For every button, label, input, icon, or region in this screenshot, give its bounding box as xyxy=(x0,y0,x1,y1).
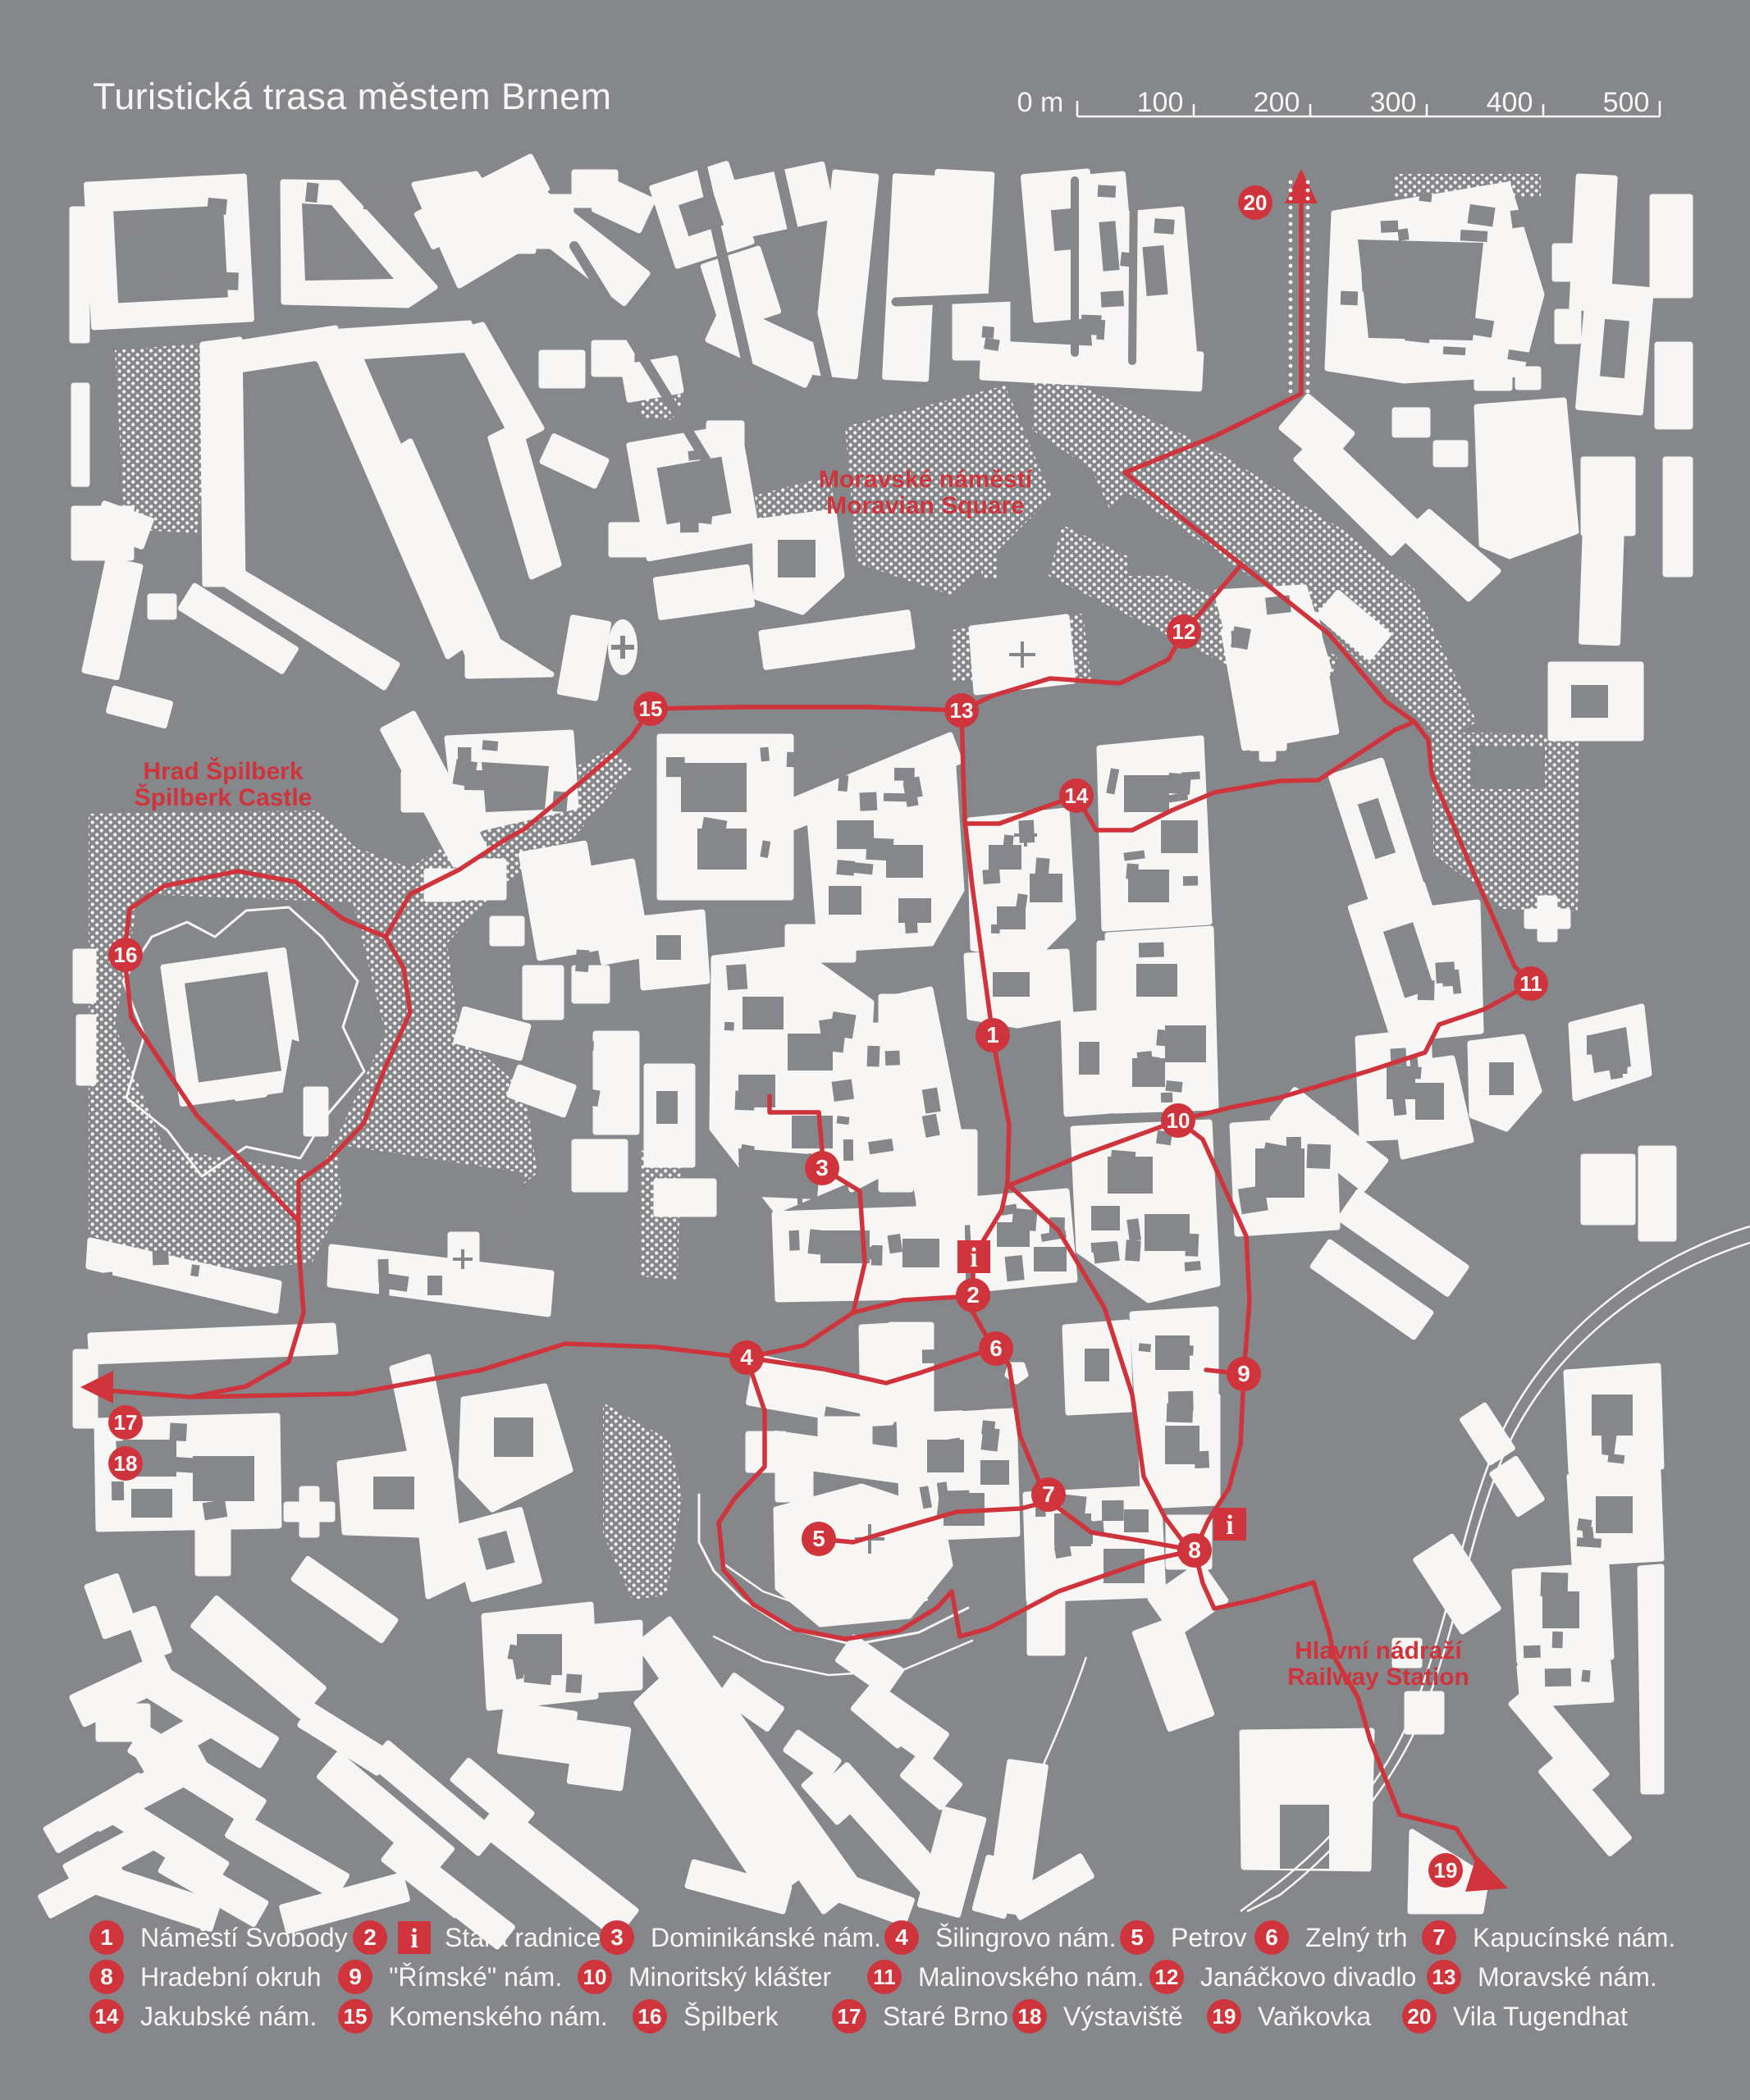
svg-text:400: 400 xyxy=(1487,87,1533,118)
svg-text:Náměstí Svobody: Náměstí Svobody xyxy=(140,1923,348,1952)
svg-text:18: 18 xyxy=(1018,2004,1042,2029)
svg-text:100: 100 xyxy=(1137,87,1184,118)
svg-text:Šilingrovo nám.: Šilingrovo nám. xyxy=(935,1923,1117,1952)
svg-text:Hradební okruh: Hradební okruh xyxy=(140,1962,322,1992)
svg-text:15: 15 xyxy=(639,696,663,721)
svg-text:Staré Brno: Staré Brno xyxy=(883,2002,1008,2031)
svg-text:Turistická trasa městem Brnem: Turistická trasa městem Brnem xyxy=(93,75,611,117)
svg-text:Vaňkovka: Vaňkovka xyxy=(1258,2002,1371,2031)
svg-text:0 m: 0 m xyxy=(1017,87,1064,118)
svg-text:16: 16 xyxy=(638,2004,662,2029)
svg-text:2: 2 xyxy=(966,1282,980,1308)
svg-text:8: 8 xyxy=(1188,1537,1201,1563)
svg-text:6: 6 xyxy=(1265,1924,1278,1950)
svg-text:3: 3 xyxy=(610,1924,624,1950)
svg-text:9: 9 xyxy=(1237,1361,1250,1386)
svg-text:Stará radnice: Stará radnice xyxy=(445,1923,601,1952)
svg-text:i: i xyxy=(1226,1510,1233,1541)
svg-text:200: 200 xyxy=(1254,87,1300,118)
svg-text:9: 9 xyxy=(349,1964,362,1989)
svg-text:4: 4 xyxy=(740,1344,753,1370)
svg-text:18: 18 xyxy=(114,1451,138,1476)
svg-text:16: 16 xyxy=(114,943,138,967)
svg-text:i: i xyxy=(410,1924,418,1954)
svg-text:13: 13 xyxy=(950,698,974,723)
svg-text:Zelný trh: Zelný trh xyxy=(1305,1923,1407,1952)
svg-text:Špilberk: Špilberk xyxy=(683,2002,779,2031)
svg-text:12: 12 xyxy=(1172,619,1196,644)
svg-text:8: 8 xyxy=(100,1964,113,1989)
svg-text:Janáčkovo divadlo: Janáčkovo divadlo xyxy=(1200,1962,1416,1992)
svg-text:20: 20 xyxy=(1244,190,1268,215)
svg-text:15: 15 xyxy=(344,2004,368,2029)
svg-text:Vila Tugendhat: Vila Tugendhat xyxy=(1453,2002,1628,2031)
svg-text:Výstaviště: Výstaviště xyxy=(1063,2002,1183,2031)
svg-text:7: 7 xyxy=(1042,1481,1055,1507)
svg-text:3: 3 xyxy=(816,1155,829,1180)
svg-text:20: 20 xyxy=(1408,2004,1432,2029)
svg-text:10: 10 xyxy=(1167,1108,1190,1133)
svg-text:500: 500 xyxy=(1603,87,1650,118)
svg-text:7: 7 xyxy=(1432,1924,1446,1950)
svg-text:Railway Station: Railway Station xyxy=(1287,1664,1469,1691)
svg-text:Komenského nám.: Komenského nám. xyxy=(389,2002,608,2031)
svg-text:14: 14 xyxy=(95,2004,119,2029)
svg-text:Špilberk Castle: Špilberk Castle xyxy=(135,783,313,811)
svg-text:19: 19 xyxy=(1434,1858,1458,1883)
svg-text:"Římské" nám.: "Římské" nám. xyxy=(389,1962,562,1992)
svg-text:12: 12 xyxy=(1155,1965,1179,1989)
svg-text:Malinovského nám.: Malinovského nám. xyxy=(918,1962,1145,1992)
svg-text:300: 300 xyxy=(1370,87,1417,118)
svg-text:5: 5 xyxy=(812,1526,825,1551)
svg-text:Moravské náměstí: Moravské náměstí xyxy=(819,466,1034,493)
svg-text:17: 17 xyxy=(838,2004,861,2029)
svg-text:i: i xyxy=(970,1243,977,1273)
svg-text:19: 19 xyxy=(1213,2004,1236,2029)
svg-text:Minoritský klášter: Minoritský klášter xyxy=(628,1962,832,1992)
svg-text:Hlavní nádraží: Hlavní nádraží xyxy=(1295,1637,1463,1664)
svg-text:11: 11 xyxy=(1519,971,1542,996)
svg-text:Moravian Square: Moravian Square xyxy=(826,492,1025,519)
svg-text:Petrov: Petrov xyxy=(1171,1923,1246,1952)
svg-text:Dominikánské nám.: Dominikánské nám. xyxy=(651,1923,881,1952)
svg-text:Kapucínské nám.: Kapucínské nám. xyxy=(1473,1923,1675,1952)
svg-text:2: 2 xyxy=(363,1924,377,1950)
svg-text:13: 13 xyxy=(1432,1965,1456,1989)
svg-text:10: 10 xyxy=(583,1965,607,1989)
svg-text:Moravské nám.: Moravské nám. xyxy=(1478,1962,1657,1992)
svg-text:Hrad Špilberk: Hrad Špilberk xyxy=(143,757,303,785)
svg-text:17: 17 xyxy=(114,1410,138,1435)
svg-text:1: 1 xyxy=(100,1924,113,1950)
svg-text:4: 4 xyxy=(895,1924,908,1950)
svg-text:14: 14 xyxy=(1065,783,1089,808)
svg-text:6: 6 xyxy=(989,1335,1003,1361)
svg-text:11: 11 xyxy=(873,1965,896,1989)
svg-text:Jakubské nám.: Jakubské nám. xyxy=(140,2002,317,2031)
svg-text:5: 5 xyxy=(1131,1924,1144,1950)
svg-text:1: 1 xyxy=(986,1022,999,1048)
